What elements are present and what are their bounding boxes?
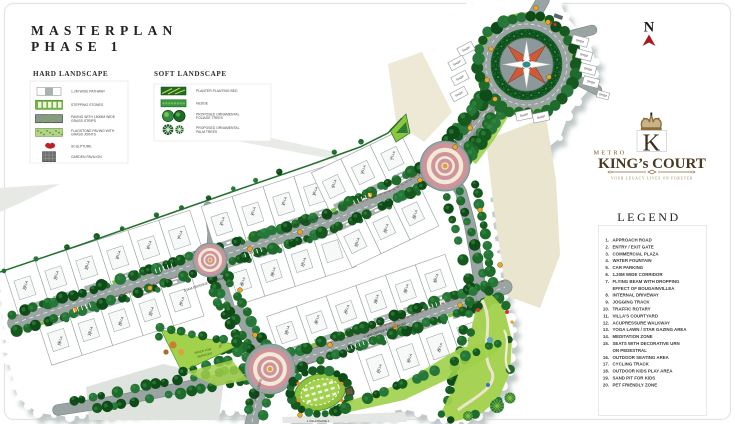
svg-text:11.: 11. bbox=[603, 313, 609, 318]
svg-text:SCULPTURE: SCULPTURE bbox=[71, 145, 92, 149]
svg-text:1.2M WIDE PATHWAY: 1.2M WIDE PATHWAY bbox=[71, 90, 106, 94]
svg-text:GRASS JOINTS: GRASS JOINTS bbox=[71, 133, 97, 137]
svg-text:VILLA'S COURTYARD: VILLA'S COURTYARD bbox=[613, 313, 659, 318]
svg-text:ON PEDESTRAL: ON PEDESTRAL bbox=[613, 348, 648, 353]
svg-text:16.: 16. bbox=[603, 355, 609, 360]
svg-text:2.: 2. bbox=[605, 244, 609, 249]
svg-text:12.: 12. bbox=[603, 320, 609, 325]
svg-text:HEDGE: HEDGE bbox=[196, 102, 209, 106]
svg-text:1 VILLA PHASE 2: 1 VILLA PHASE 2 bbox=[307, 419, 330, 423]
svg-text:CAR PARKING: CAR PARKING bbox=[613, 265, 644, 270]
svg-text:OUTDOOR KIDS PLAY AREA: OUTDOOR KIDS PLAY AREA bbox=[613, 369, 674, 374]
svg-text:INTERNAL DRIVEWAY: INTERNAL DRIVEWAY bbox=[613, 293, 659, 298]
svg-text:ACUPRESSURE WALKWAY: ACUPRESSURE WALKWAY bbox=[613, 320, 670, 325]
svg-text:GRASS STRIPS: GRASS STRIPS bbox=[71, 119, 97, 123]
svg-text:EFFECT OF BOUGAINVILLEA: EFFECT OF BOUGAINVILLEA bbox=[613, 286, 676, 291]
svg-text:4.: 4. bbox=[605, 258, 609, 263]
svg-text:TRAFFIC ROTARY: TRAFFIC ROTARY bbox=[613, 307, 651, 312]
svg-text:1.20M WIDE CORRIDOR: 1.20M WIDE CORRIDOR bbox=[613, 272, 664, 277]
svg-text:K: K bbox=[643, 130, 661, 157]
svg-text:7.: 7. bbox=[605, 279, 609, 284]
svg-text:SOFT LANDSCAPE: SOFT LANDSCAPE bbox=[154, 70, 227, 78]
svg-text:COMMERCIAL PLAZA: COMMERCIAL PLAZA bbox=[613, 251, 660, 256]
svg-text:1.: 1. bbox=[605, 238, 609, 243]
svg-text:JOGGING TRACK: JOGGING TRACK bbox=[613, 300, 651, 305]
svg-text:SEATS WITH DECORATIVE URN: SEATS WITH DECORATIVE URN bbox=[613, 341, 680, 346]
svg-text:6.: 6. bbox=[605, 272, 609, 277]
svg-text:17.: 17. bbox=[603, 362, 609, 367]
svg-text:PET FRIENDLY ZONE: PET FRIENDLY ZONE bbox=[613, 382, 658, 387]
svg-text:YOUR LEGACY LIVES ON FOREVER: YOUR LEGACY LIVES ON FOREVER bbox=[611, 177, 693, 181]
svg-text:20.: 20. bbox=[603, 382, 609, 387]
svg-text:HARD LANDSCAPE: HARD LANDSCAPE bbox=[33, 70, 108, 78]
svg-text:PALM TREES: PALM TREES bbox=[196, 130, 218, 134]
svg-text:SAND PIT FOR KIDS: SAND PIT FOR KIDS bbox=[613, 376, 656, 381]
svg-text:STEPPING STONES: STEPPING STONES bbox=[71, 103, 104, 107]
svg-text:19.: 19. bbox=[603, 376, 609, 381]
svg-text:3.: 3. bbox=[605, 251, 609, 256]
svg-text:8.: 8. bbox=[605, 293, 609, 298]
svg-text:5.: 5. bbox=[605, 265, 609, 270]
svg-text:PHASE 1: PHASE 1 bbox=[31, 39, 123, 54]
svg-text:MASTERPLAN: MASTERPLAN bbox=[31, 23, 178, 38]
svg-text:LEGEND: LEGEND bbox=[617, 210, 681, 224]
svg-text:OUTDOOR SEATING AREA: OUTDOOR SEATING AREA bbox=[613, 355, 670, 360]
svg-text:APPROACH ROAD: APPROACH ROAD bbox=[613, 238, 652, 243]
svg-text:10.: 10. bbox=[603, 307, 609, 312]
svg-text:9.: 9. bbox=[605, 300, 609, 305]
svg-text:MEDITATION ZONE: MEDITATION ZONE bbox=[613, 334, 653, 339]
svg-text:PLANTER PLANTING BED: PLANTER PLANTING BED bbox=[196, 89, 238, 93]
svg-text:N: N bbox=[644, 20, 655, 36]
svg-text:ENTRY / EXIT GATE: ENTRY / EXIT GATE bbox=[613, 244, 654, 249]
svg-text:YOGA LAWN / STAR GAZING AREA: YOGA LAWN / STAR GAZING AREA bbox=[613, 327, 688, 332]
svg-text:KING’s COURT: KING’s COURT bbox=[598, 156, 706, 172]
svg-text:GARDEN PAVILION: GARDEN PAVILION bbox=[71, 155, 102, 159]
svg-text:FLYING BEAM WITH DROPPING: FLYING BEAM WITH DROPPING bbox=[613, 279, 681, 284]
svg-text:15.: 15. bbox=[603, 341, 609, 346]
svg-text:FOLIAGE TREES: FOLIAGE TREES bbox=[196, 116, 224, 120]
svg-text:18.: 18. bbox=[603, 369, 609, 374]
svg-text:CYCLING TRACK: CYCLING TRACK bbox=[613, 362, 650, 367]
svg-text:WATER FOUNTAIN: WATER FOUNTAIN bbox=[613, 258, 652, 263]
svg-text:13.: 13. bbox=[603, 327, 609, 332]
svg-text:14.: 14. bbox=[603, 334, 609, 339]
